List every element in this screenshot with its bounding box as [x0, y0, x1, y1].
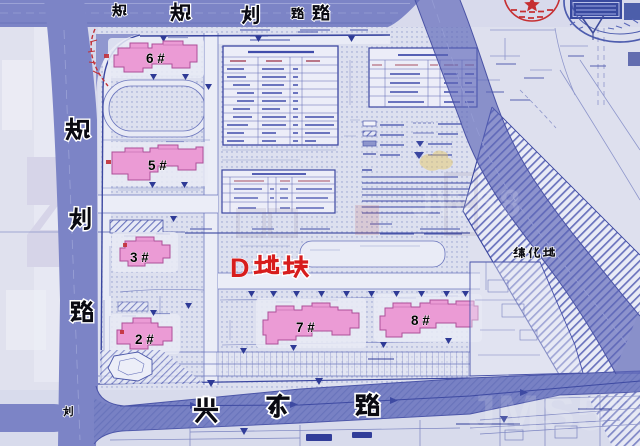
svg-text:8 #: 8 # [411, 313, 430, 328]
svg-text:7 #: 7 # [296, 320, 315, 335]
svg-text:6 #: 6 # [146, 51, 165, 66]
svg-text:D: D [230, 253, 250, 283]
svg-text:3 #: 3 # [130, 250, 149, 265]
svg-text:JMS5B: JMS5B [468, 385, 640, 441]
svg-text:5 #: 5 # [148, 158, 167, 173]
svg-text:JW58: JW58 [412, 183, 523, 225]
svg-text:2 #: 2 # [135, 332, 154, 347]
